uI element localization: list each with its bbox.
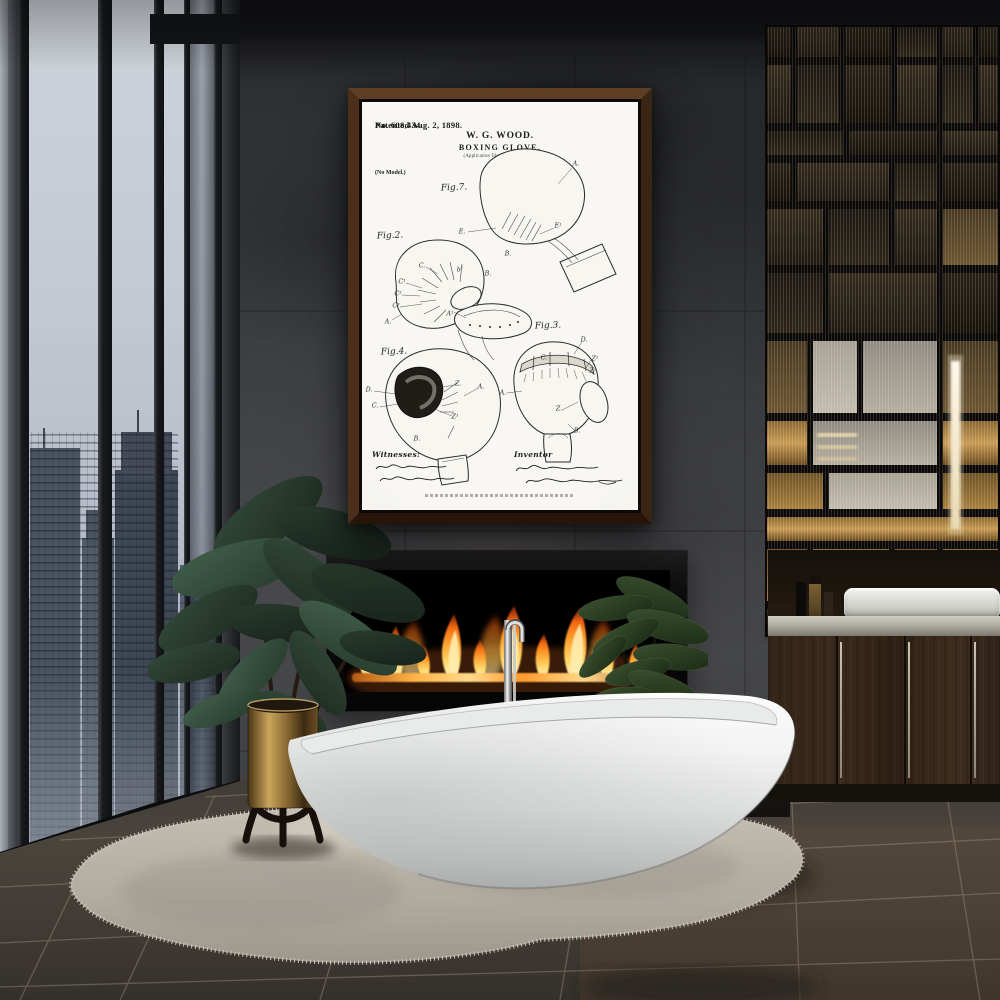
printer-imprint: [425, 494, 575, 497]
figure-annotation: A.: [478, 384, 485, 391]
figure-annotation: Z.: [556, 406, 562, 413]
figure-annotation: A.: [573, 161, 580, 168]
figure-label-fig4: Fig.4.: [381, 347, 408, 358]
cabinet-handle: [908, 642, 910, 778]
toiletry-bottle: [824, 592, 833, 618]
figure-annotation: Z.: [455, 381, 461, 388]
filler-spout: [488, 614, 532, 648]
sink-basin: [844, 588, 1000, 618]
figure-annotation: C.: [419, 263, 426, 270]
figure-annotation: b″: [457, 267, 463, 274]
figure-annotation: E.: [459, 229, 466, 236]
bathroom-scene: No. 608,434. Patented Aug. 2, 1898. W. G…: [0, 0, 1000, 1000]
figure-annotations: Fig.7.A.E.E¹B.Fig.2.C.C¹C²C³A.A¹b″B.Fig.…: [362, 102, 638, 510]
figure-annotation: A.: [385, 319, 392, 326]
figure-annotation: C³: [392, 303, 399, 310]
figure-annotation: C.: [372, 403, 379, 410]
freestanding-bathtub: [268, 658, 812, 910]
toiletry-bottle: [796, 582, 806, 618]
figure-annotation: Z²: [590, 368, 597, 375]
inventor-signature: [512, 459, 630, 495]
figure-label-fig2: Fig.2.: [377, 231, 404, 242]
cabinet-seam: [836, 636, 838, 784]
witnesses-label: Witnesses:: [372, 450, 420, 459]
figure-annotation: D.: [581, 337, 588, 344]
stone-countertop: [768, 616, 1000, 636]
figure-annotation: A.: [500, 390, 507, 397]
figure-annotation: A¹: [446, 311, 453, 318]
figure-annotation: B.: [485, 271, 492, 278]
witness-signatures: [370, 459, 488, 495]
figure-annotation: D.: [366, 387, 373, 394]
cabinet-handle: [840, 642, 842, 778]
witnesses-block: Witnesses:: [370, 450, 480, 496]
patent-poster-frame: No. 608,434. Patented Aug. 2, 1898. W. G…: [348, 88, 652, 524]
cabinet-handle: [974, 642, 976, 778]
inventor-block: Inventor: [512, 450, 630, 496]
glass-partition: [765, 25, 1000, 637]
figure-label-fig7: Fig.7.: [441, 183, 468, 194]
inventor-label: Inventor: [514, 450, 552, 459]
figure-label-fig3: Fig.3.: [535, 321, 562, 332]
cabinet-seam: [970, 636, 972, 784]
patent-poster: No. 608,434. Patented Aug. 2, 1898. W. G…: [362, 102, 638, 510]
figure-annotation: B.: [414, 436, 421, 443]
window-header-frame: [150, 14, 240, 44]
figure-annotation: C¹: [398, 279, 405, 286]
toiletry-bottle: [809, 576, 821, 618]
figure-annotation: B.: [505, 251, 512, 258]
figure-annotation: Z¹: [592, 356, 599, 363]
figure-annotation: Z¹: [452, 414, 459, 421]
figure-annotation: B.: [574, 428, 581, 435]
cabinet-seam: [904, 636, 906, 784]
figure-annotation: E¹: [554, 223, 561, 230]
figure-annotation: C²: [394, 291, 401, 298]
figure-annotation: C.: [541, 355, 548, 362]
